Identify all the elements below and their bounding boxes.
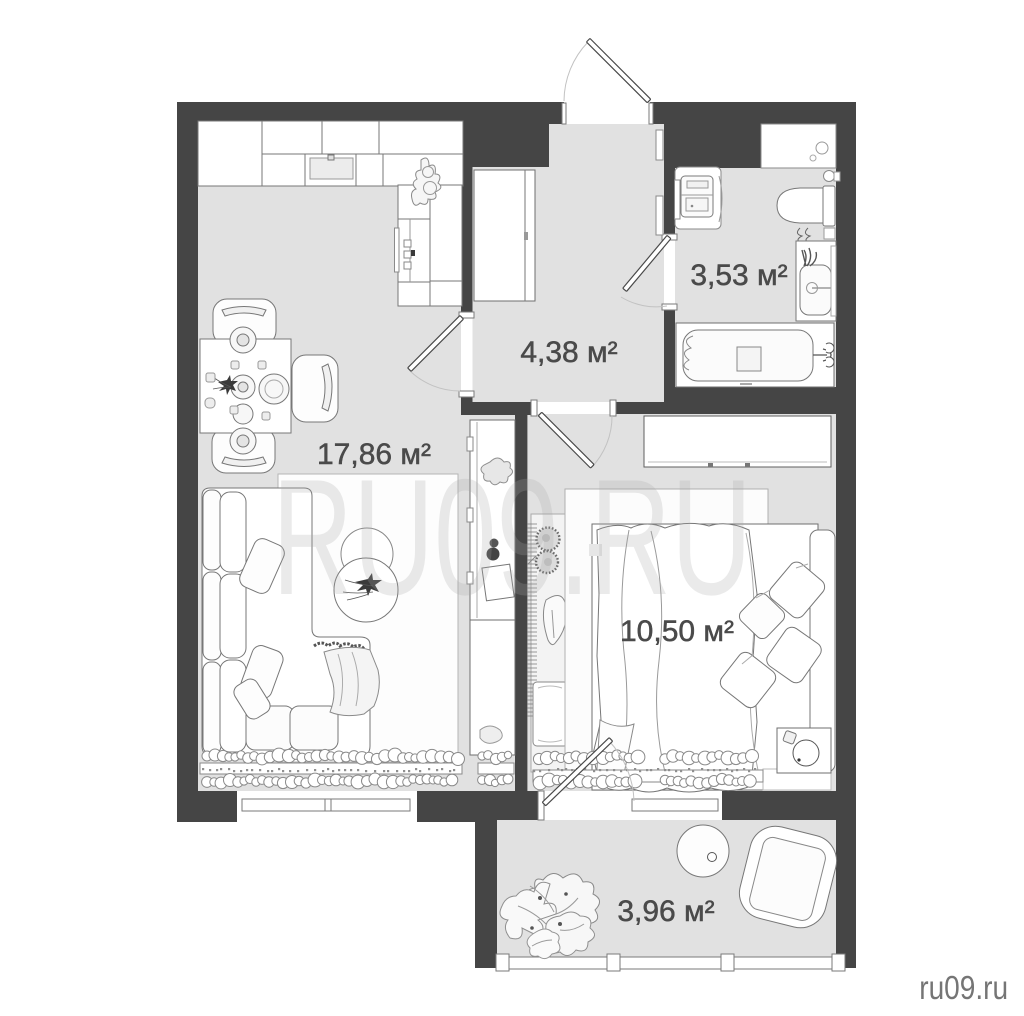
svg-text:ru09.ru: ru09.ru [919, 970, 1008, 1007]
svg-text:RU09.RU: RU09.RU [272, 444, 752, 629]
svg-text:3,96 м²: 3,96 м² [617, 895, 714, 928]
svg-text:3,53 м²: 3,53 м² [690, 259, 787, 292]
svg-text:4,38 м²: 4,38 м² [520, 336, 617, 369]
